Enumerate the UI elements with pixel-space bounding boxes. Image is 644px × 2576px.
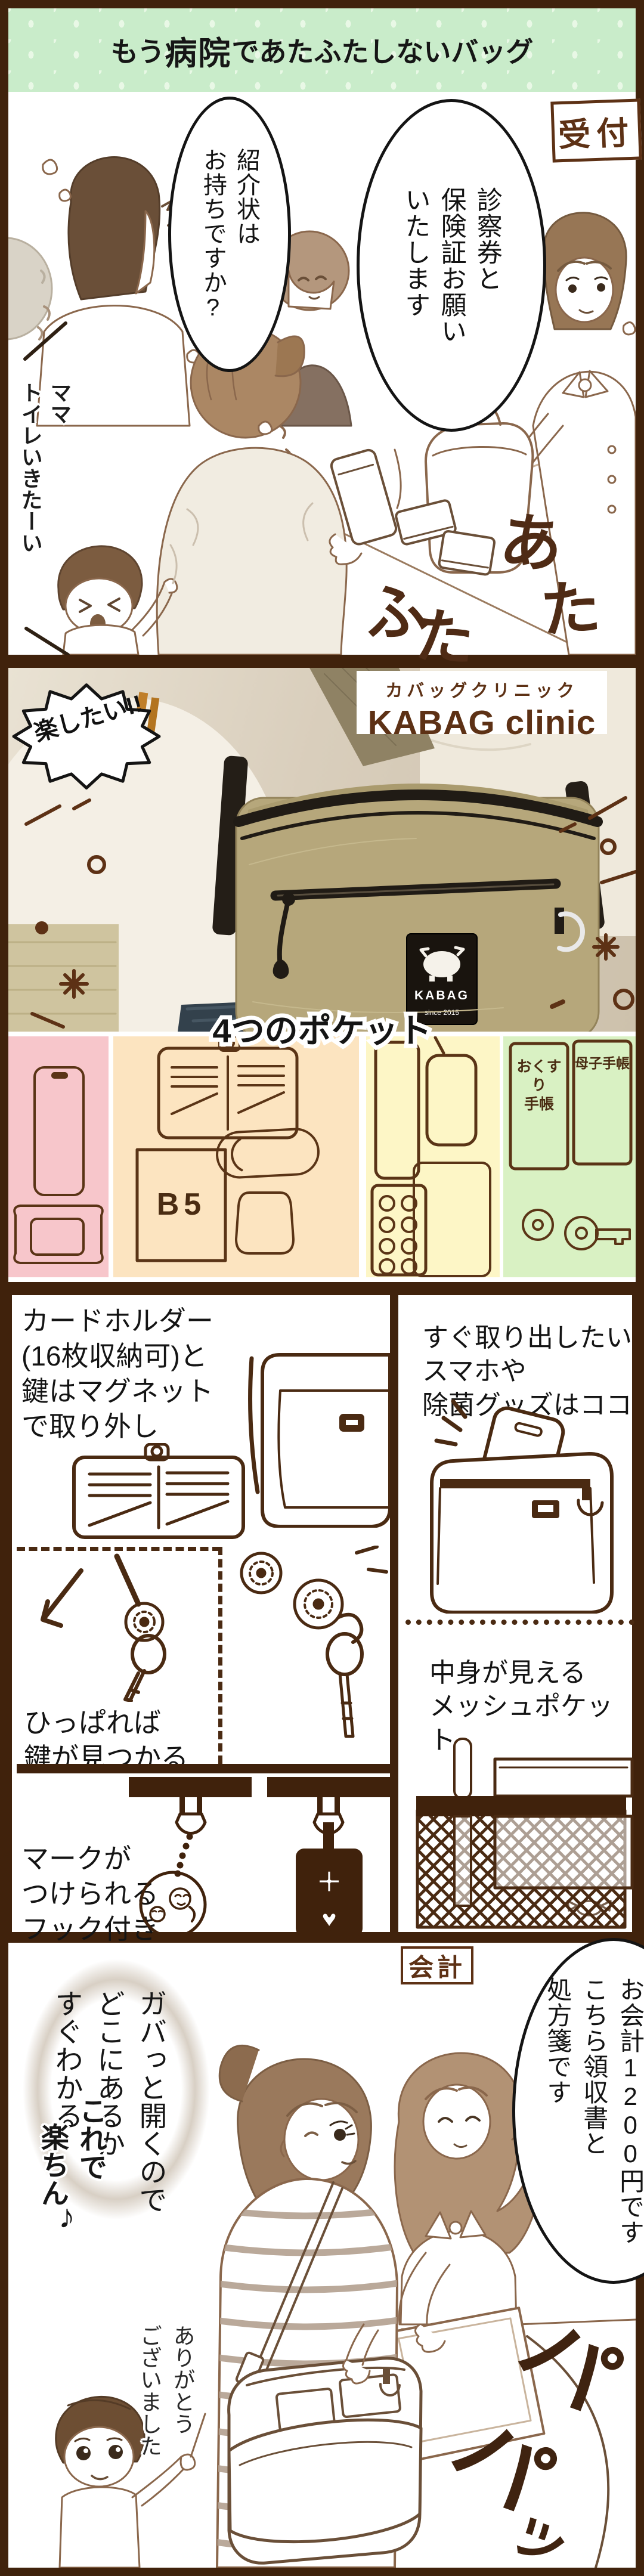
banner-text: もう bbox=[111, 30, 165, 70]
tag-heart-icon: ♥ bbox=[320, 1902, 339, 1937]
bag-front-flap-open bbox=[229, 2420, 421, 2541]
hooks-diagram: + ♥ bbox=[118, 1772, 390, 1938]
pull-key-diagram bbox=[21, 1553, 212, 1702]
checkout-sign-label: 会計 bbox=[408, 1948, 466, 1984]
panel-features: カードホルダー (16枚収納可)と 鍵はマグネット で取り外し bbox=[8, 1292, 636, 1936]
yellow-column-items bbox=[366, 1036, 500, 1277]
reception-sign: 受付 bbox=[550, 98, 642, 162]
cardholder-caption: カードホルダー (16枚収納可)と 鍵はマグネット で取り外し bbox=[21, 1304, 213, 1444]
easy-comment-line2: 楽ちん bbox=[32, 2123, 73, 2207]
speech-bubble-payment-text: お会計1200円です こちら領収書と 処方箋です bbox=[539, 1977, 644, 2245]
mesh-pocket-diagram bbox=[410, 1734, 634, 1934]
four-pockets-title: 4つのポケット bbox=[8, 1004, 636, 1052]
pocket-column-yellow bbox=[366, 1036, 500, 1277]
cardholder-diagram bbox=[69, 1443, 248, 1541]
brand-name-jp: カバッグクリニック bbox=[357, 677, 607, 702]
magnet-detach-diagram bbox=[228, 1546, 389, 1748]
phone-pocket-diagram bbox=[403, 1395, 639, 1614]
child-dialogue: ママ トイレいきたーい bbox=[16, 382, 73, 553]
sfx-flustered-2: た bbox=[537, 559, 603, 649]
sfx-flustered-4: た bbox=[411, 587, 478, 678]
dashed-divider-h bbox=[17, 1547, 221, 1551]
pocket-column-pink bbox=[8, 1036, 109, 1277]
speech-bubble-insurance-text: 診察券と 保険証お願い いたします bbox=[398, 187, 506, 344]
brand-box: カバッグクリニック KABAG clinic bbox=[357, 671, 607, 734]
medicine-notebook-label: おくすり 手帳 bbox=[510, 1058, 568, 1114]
banner: もう病院で あたふたしないバッグ bbox=[8, 8, 636, 92]
speech-bubble-referral: 紹介状は お持ちですか? bbox=[168, 97, 291, 372]
panel-divider bbox=[390, 1295, 398, 1932]
pocket-column-green: おくすり 手帳 母子手帳 bbox=[503, 1036, 636, 1277]
banner-text: あたふたしないバッグ bbox=[259, 30, 533, 70]
reception-sign-label: 受付 bbox=[558, 106, 636, 155]
dotted-divider bbox=[405, 1620, 634, 1625]
mom-dress bbox=[157, 448, 346, 655]
panel-four-pockets: 4つのポケット B5 bbox=[8, 1032, 636, 1282]
comic-page: もう病院で あたふたしないバッグ bbox=[0, 0, 644, 2576]
easy-comment-line1: これで bbox=[70, 2097, 112, 2181]
panel-reception-scene: 受付 診察券と 保険証お願い いたします 紹介状は お持ちですか? ママ トイレ… bbox=[8, 92, 636, 655]
bag-front-diagram bbox=[246, 1337, 390, 1528]
speech-bubble-insurance: 診察券と 保険証お願い いたします bbox=[357, 99, 546, 432]
dashed-divider-v bbox=[218, 1547, 222, 1764]
falling-card-case bbox=[439, 531, 496, 575]
checkout-sign: 会計 bbox=[401, 1946, 473, 1984]
peach-column-items bbox=[113, 1036, 359, 1277]
b5-size-label: B5 bbox=[150, 1187, 212, 1222]
banner-text: で bbox=[231, 30, 259, 70]
speech-bubble-referral-text: 紹介状は お持ちですか? bbox=[196, 148, 263, 321]
pocket-column-peach: B5 bbox=[113, 1036, 359, 1277]
d-ring-icon bbox=[177, 1814, 205, 1833]
music-note-icon: ♪ bbox=[58, 2197, 75, 2236]
thanks-text: ありがとう ございました bbox=[132, 2324, 199, 2457]
banner-text-hospital: 病院 bbox=[165, 27, 231, 74]
panel-checkout-scene: 会計 お会計1200円です こちら領収書と 処方箋です ガバっと開くので どこに… bbox=[8, 1943, 636, 2568]
bag-tag-brand: KABAG bbox=[414, 989, 469, 1002]
panel-product-photo: KABAG since 2015 bbox=[8, 668, 636, 1032]
brand-name-en: KABAG clinic bbox=[357, 703, 607, 742]
arrow-icon bbox=[43, 1571, 81, 1626]
pink-column-items bbox=[8, 1036, 109, 1277]
sweat-drops-icon bbox=[43, 160, 71, 201]
tag-plus-icon: + bbox=[316, 1856, 342, 1906]
mother-child-notebook-label: 母子手帳 bbox=[574, 1052, 631, 1072]
